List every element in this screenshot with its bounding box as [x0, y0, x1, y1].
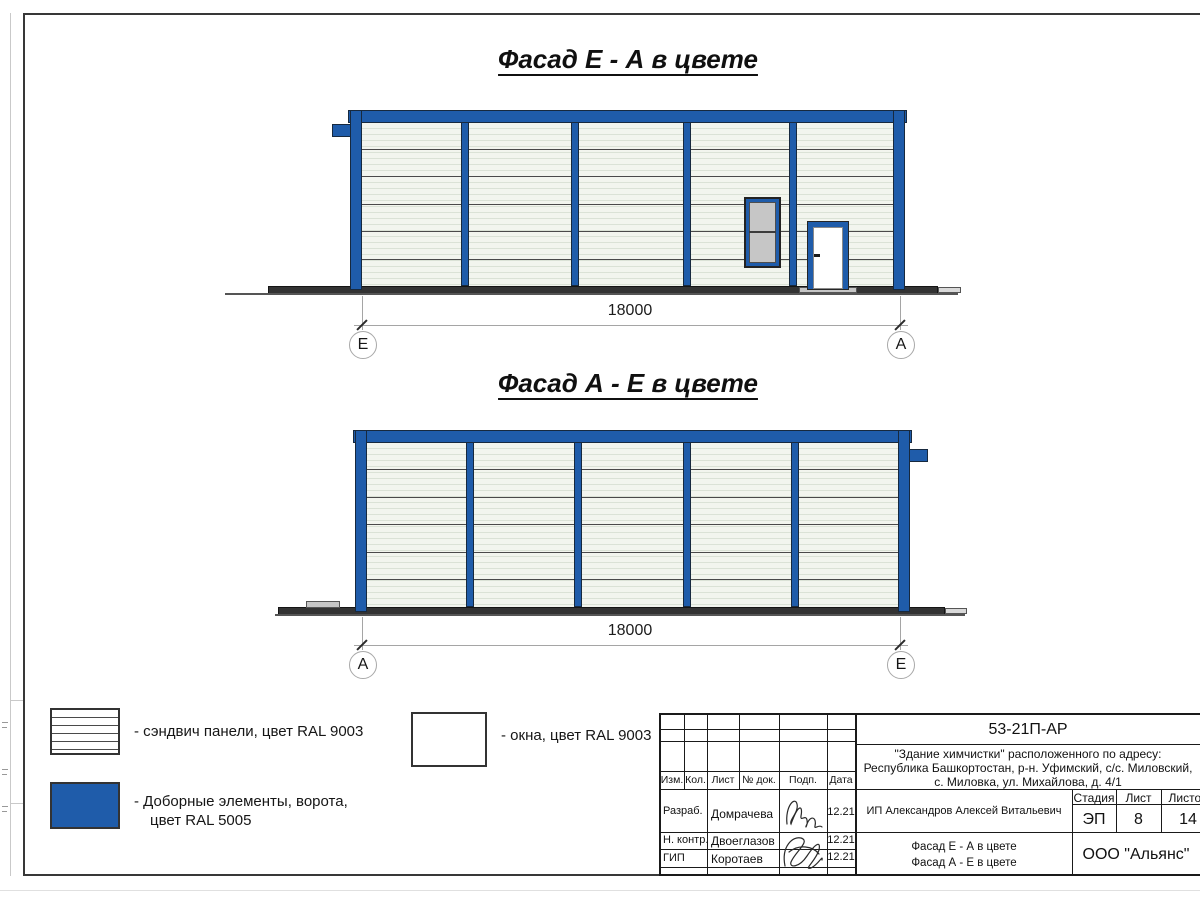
legend-label-sandwich-panels: - сэндвич панели, цвет RAL 9003 — [134, 723, 363, 740]
tb-date-nkontr: 12.21 — [827, 834, 855, 846]
tb-hline — [660, 832, 1200, 833]
tb-sheet-label: Лист — [1116, 791, 1161, 805]
tb-col-izm: Изм. — [660, 774, 684, 786]
dimension-value: 18000 — [540, 302, 720, 320]
corner-column — [350, 110, 362, 290]
window — [744, 197, 781, 268]
tb-name-nkontr: Двоеглазов — [711, 834, 775, 848]
tb-stage-value: ЭП — [1072, 811, 1116, 829]
ground-wedge — [945, 608, 967, 614]
tb-sheets-label: Листов — [1161, 791, 1200, 805]
tb-vline — [707, 715, 708, 874]
tb-address-line1: "Здание химчистки" расположенного по адр… — [856, 747, 1200, 761]
axis-marker-a: А — [887, 331, 915, 359]
mullion — [683, 122, 691, 286]
margin-tick — [2, 806, 8, 807]
tb-stage-label: Стадия — [1072, 791, 1116, 805]
tb-content-line1: Фасад Е - А в цвете — [856, 841, 1072, 853]
tb-address-line2: Республика Башкортостан, р-н. Уфимский, … — [856, 761, 1200, 775]
dimension-value: 18000 — [540, 622, 720, 640]
ground-wedge — [938, 287, 961, 293]
corner-column — [898, 430, 910, 612]
signature-scribbles — [779, 790, 827, 874]
legend-label-extras-line2: цвет RAL 5005 — [150, 812, 251, 829]
tb-sheets-value: 14 — [1161, 811, 1200, 829]
mullion — [683, 442, 691, 607]
door-handle — [814, 254, 820, 257]
panel-joint-line — [366, 497, 899, 498]
entry-step — [306, 601, 340, 608]
tb-col-kol: Кол. — [684, 774, 707, 786]
tb-doc-code: 53-21П-АР — [856, 721, 1200, 739]
margin-tick — [2, 722, 8, 723]
tb-hline — [660, 771, 856, 772]
margin-tick — [2, 769, 8, 770]
tb-role-razrab: Разраб. — [663, 805, 703, 817]
dimension-line — [354, 325, 908, 326]
window-transom-bar — [749, 231, 776, 233]
corner-column — [893, 110, 905, 290]
ground-line — [275, 614, 965, 616]
tb-name-razrab: Домрачева — [711, 807, 773, 821]
tb-hline — [660, 729, 856, 730]
tb-hline — [660, 741, 856, 742]
tb-content-line2: Фасад А - Е в цвете — [856, 857, 1072, 869]
dimension-line — [354, 645, 908, 646]
mullion — [574, 442, 582, 607]
tb-name-gip: Коротаев — [711, 852, 763, 866]
mullion — [791, 442, 799, 607]
door — [807, 221, 849, 290]
tb-col-podp: Подп. — [779, 774, 827, 786]
margin-divider — [10, 803, 23, 804]
panel-joint-line — [366, 469, 899, 470]
binding-margin-line — [10, 13, 11, 876]
tb-date-razrab: 12.21 — [827, 806, 855, 818]
mullion — [789, 122, 797, 286]
drawing-sheet: Фасад Е - А в цвете 18000 Е А Фасад А - … — [0, 0, 1200, 900]
tb-role-gip: ГИП — [663, 852, 685, 864]
panel-joint-line — [366, 579, 899, 580]
panel-joint-line — [366, 524, 899, 525]
tb-role-nkontr: Н. контр. — [663, 834, 708, 846]
tb-col-ndok: № док. — [739, 774, 779, 786]
legend-swatch-extras — [50, 782, 120, 829]
tb-hline — [856, 744, 1200, 745]
legend-label-windows: - окна, цвет RAL 9003 — [501, 727, 651, 744]
margin-tick — [2, 727, 7, 728]
margin-tick — [2, 774, 7, 775]
tb-date-gip: 12.21 — [827, 851, 855, 863]
tb-col-list: Лист — [707, 774, 739, 786]
axis-marker-e: Е — [887, 651, 915, 679]
mullion — [461, 122, 469, 286]
legend-label-extras-line1: - Доборные элементы, ворота, — [134, 793, 348, 810]
facade-e-a-title: Фасад Е - А в цвете — [378, 44, 878, 75]
mullion — [571, 122, 579, 286]
sheet-edge-line — [0, 890, 1200, 891]
margin-divider — [10, 700, 23, 701]
tb-address-line3: с. Миловка, ул. Михайлова, д. 4/1 — [856, 775, 1200, 789]
axis-marker-a: А — [349, 651, 377, 679]
legend-swatch-windows — [411, 712, 487, 767]
tb-client: ИП Александров Алексей Витальевич — [856, 805, 1072, 817]
margin-tick — [2, 811, 7, 812]
tb-sheet-value: 8 — [1116, 811, 1161, 829]
panel-joint-line — [361, 149, 894, 150]
corner-column — [355, 430, 367, 612]
door-leaf — [813, 227, 843, 289]
legend-swatch-sandwich-panels — [50, 708, 120, 755]
tb-hline — [660, 789, 1200, 790]
parapet-band — [348, 110, 907, 123]
panel-joint-line — [361, 176, 894, 177]
parapet-band — [353, 430, 912, 443]
panel-joint-line — [361, 204, 894, 205]
facade-a-e-title: Фасад А - Е в цвете — [378, 368, 878, 399]
axis-marker-e: Е — [349, 331, 377, 359]
panel-joint-line — [366, 552, 899, 553]
mullion — [466, 442, 474, 607]
ground-line — [225, 293, 958, 295]
tb-col-data: Дата — [827, 774, 855, 786]
tb-company: ООО "Альянс" — [1072, 846, 1200, 864]
